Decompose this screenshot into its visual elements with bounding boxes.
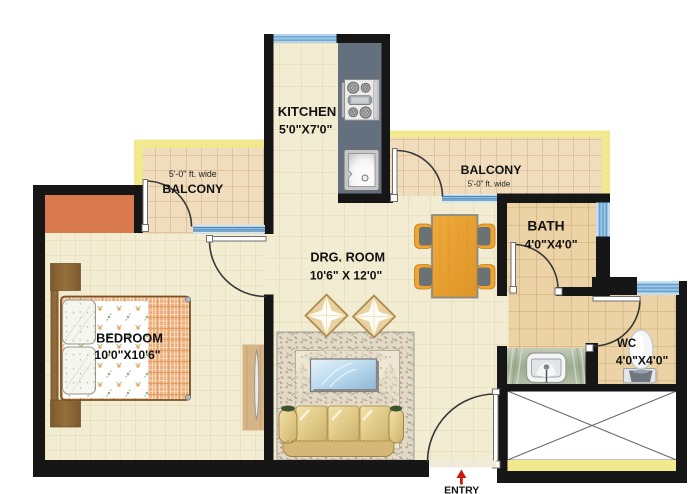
svg-text:BALCONY: BALCONY bbox=[162, 182, 223, 196]
svg-text:ENTRY: ENTRY bbox=[444, 485, 479, 494]
svg-text:WC: WC bbox=[617, 338, 636, 350]
svg-text:DRG. ROOM: DRG. ROOM bbox=[310, 250, 385, 264]
svg-text:5'0"X7'0": 5'0"X7'0" bbox=[279, 123, 333, 137]
svg-text:BATH: BATH bbox=[527, 219, 564, 234]
svg-text:4'0"X4'0": 4'0"X4'0" bbox=[616, 354, 669, 368]
svg-text:BALCONY: BALCONY bbox=[461, 163, 522, 177]
svg-text:5'-0" ft. wide: 5'-0" ft. wide bbox=[169, 169, 217, 179]
svg-text:5'-0" ft. wide: 5'-0" ft. wide bbox=[468, 180, 510, 189]
svg-text:KITCHEN: KITCHEN bbox=[278, 104, 337, 119]
svg-text:4'0"X4'0": 4'0"X4'0" bbox=[524, 238, 577, 252]
svg-text:10'0"X10'6": 10'0"X10'6" bbox=[94, 348, 160, 362]
svg-text:BEDROOM: BEDROOM bbox=[96, 331, 163, 346]
svg-text:10'6" X 12'0": 10'6" X 12'0" bbox=[310, 268, 382, 282]
